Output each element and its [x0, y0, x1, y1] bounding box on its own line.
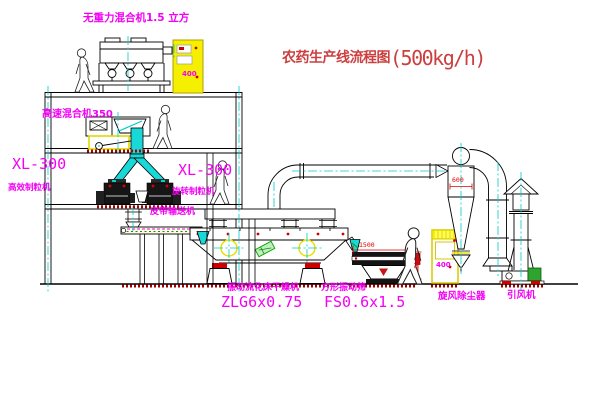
label-granulator-left-name: 高效制粒机	[8, 184, 51, 193]
label-granulator-mid-name: 旋转制粒机	[172, 188, 215, 197]
downpipe	[125, 209, 142, 227]
dim-sieve-length: 1500	[359, 242, 375, 249]
drawing-title-capacity: (500kg/h)	[390, 46, 485, 70]
label-granulator-mid-model: XL-300	[178, 163, 232, 178]
dryer-exhaust-duct	[268, 163, 448, 209]
label-fan: 引风机	[507, 291, 536, 301]
dim-sieve-height: 540	[413, 257, 420, 269]
label-cyclone: 旋风除尘器	[438, 292, 486, 302]
label-sieve-model: FS0.6x1.5	[324, 295, 405, 310]
control-cabinet-a	[173, 40, 203, 93]
label-dryer-name: 振动流化床干燥机	[227, 284, 299, 293]
label-granulator-left-model: XL-300	[12, 157, 66, 172]
cabinet-b-readout: 400	[436, 262, 451, 269]
label-dryer-model: ZLG6x0.75	[221, 295, 302, 310]
person-second-floor	[153, 105, 172, 148]
gravity-free-mixer	[93, 38, 172, 92]
label-belt-conveyor: 皮带输送机	[150, 208, 195, 217]
cyclone-outlet-duct	[470, 150, 513, 272]
fan-motor	[528, 268, 541, 281]
granulator-left-machine	[96, 179, 135, 204]
dim-cyclone-diameter: 600	[452, 177, 464, 184]
person-top-floor	[75, 49, 94, 92]
fluid-bed-dryer	[190, 209, 359, 284]
cabinet-a-readout: 400	[182, 71, 197, 78]
pesticide-line-drawing: 农药生产线流程图 (500kg/h) 无重力混合机1.5 立方 高速混合机350…	[0, 0, 600, 403]
label-gravity-mixer: 无重力混合机1.5 立方	[83, 13, 189, 24]
label-sieve-name: 方形振动筛	[321, 284, 366, 293]
drawing-title-text: 农药生产线流程图	[282, 47, 390, 70]
drawing-title: 农药生产线流程图 (500kg/h)	[282, 46, 485, 70]
label-speed-mixer: 高速混合机350	[42, 110, 113, 120]
